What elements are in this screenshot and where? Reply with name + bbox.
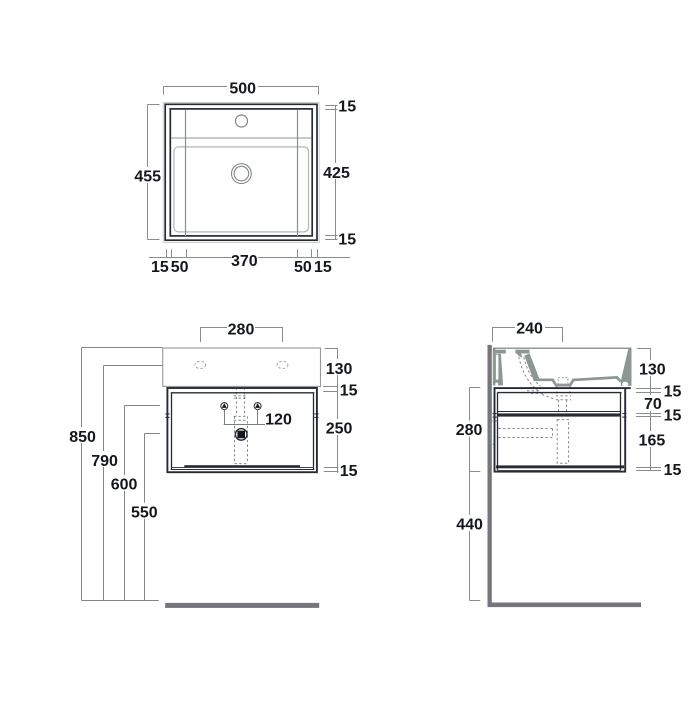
svg-text:850: 850 xyxy=(69,429,96,446)
svg-text:280: 280 xyxy=(456,422,483,439)
svg-text:120: 120 xyxy=(265,411,292,428)
svg-text:165: 165 xyxy=(639,433,666,450)
svg-text:600: 600 xyxy=(111,477,138,494)
svg-text:455: 455 xyxy=(134,169,161,186)
svg-text:70: 70 xyxy=(644,396,662,413)
svg-text:15: 15 xyxy=(664,408,682,425)
svg-text:15: 15 xyxy=(338,98,356,115)
svg-text:15: 15 xyxy=(340,463,358,480)
svg-text:240: 240 xyxy=(516,320,543,337)
svg-text:130: 130 xyxy=(639,361,666,378)
svg-text:130: 130 xyxy=(326,361,353,378)
svg-text:370: 370 xyxy=(231,253,258,270)
svg-text:50: 50 xyxy=(171,259,189,276)
svg-text:440: 440 xyxy=(456,517,483,534)
svg-text:15: 15 xyxy=(151,259,169,276)
svg-text:790: 790 xyxy=(91,453,118,470)
svg-text:550: 550 xyxy=(131,504,158,521)
svg-text:15: 15 xyxy=(338,232,356,249)
svg-text:15: 15 xyxy=(314,259,332,276)
svg-text:15: 15 xyxy=(664,384,682,401)
svg-text:15: 15 xyxy=(340,382,358,399)
svg-text:250: 250 xyxy=(326,420,353,437)
svg-text:500: 500 xyxy=(229,80,256,97)
svg-text:280: 280 xyxy=(228,321,255,338)
svg-text:15: 15 xyxy=(664,462,682,479)
svg-text:50: 50 xyxy=(294,259,312,276)
svg-text:425: 425 xyxy=(323,165,350,182)
